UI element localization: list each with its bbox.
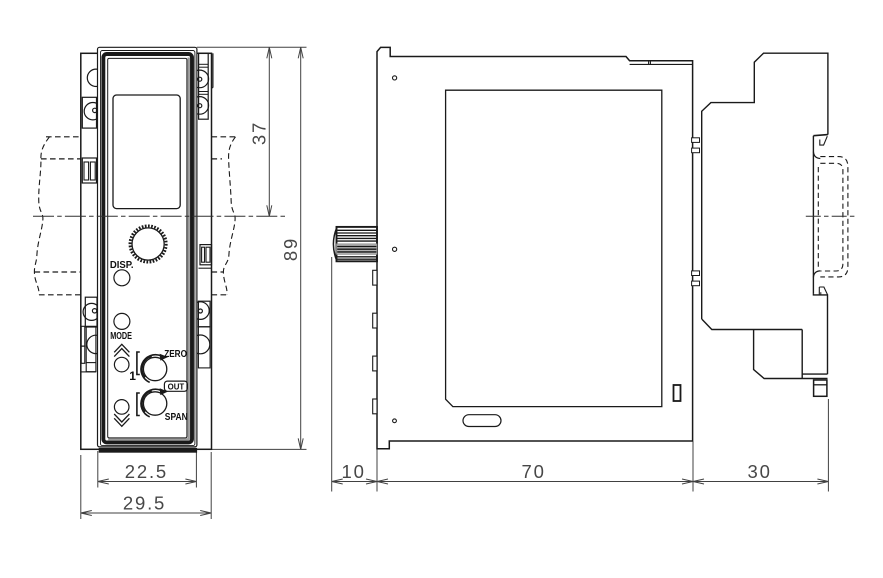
svg-text:10: 10	[342, 461, 366, 482]
svg-text:1: 1	[129, 369, 136, 383]
svg-text:22.5: 22.5	[125, 461, 168, 482]
svg-text:37: 37	[249, 121, 270, 145]
svg-text:ZERO: ZERO	[164, 349, 187, 360]
svg-text:MODE: MODE	[110, 331, 132, 342]
svg-text:SPAN: SPAN	[165, 412, 188, 423]
svg-text:29.5: 29.5	[123, 493, 166, 514]
svg-text:70: 70	[522, 461, 546, 482]
svg-text:89: 89	[280, 237, 301, 261]
svg-text:OUT: OUT	[168, 382, 185, 392]
svg-text:30: 30	[748, 461, 772, 482]
